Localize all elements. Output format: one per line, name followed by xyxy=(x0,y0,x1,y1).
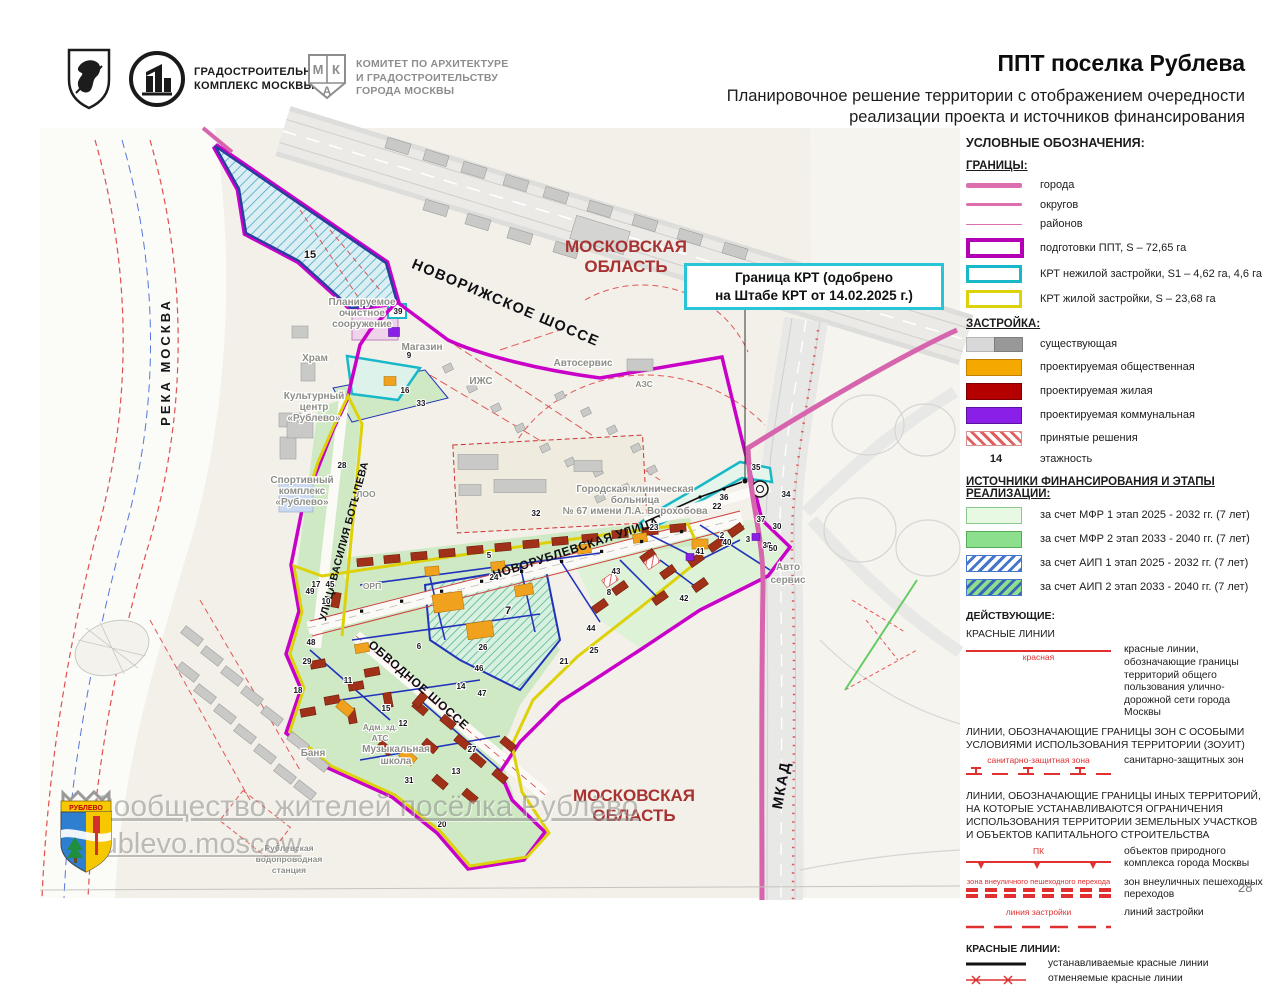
crest-text: РУБЛЕВО xyxy=(69,805,103,812)
map-parcel-number: 49 xyxy=(306,587,315,596)
map-label: Автосервис xyxy=(553,358,613,369)
map-label: ИЖС xyxy=(469,376,492,387)
krt-res-swatch xyxy=(966,290,1026,308)
mka-letter-m: М xyxy=(313,62,324,77)
map-parcel-number: 6 xyxy=(417,642,422,651)
legend-item-city-border: города xyxy=(966,179,1266,192)
okrug-line-swatch xyxy=(966,203,1026,206)
map-parcel-number: 18 xyxy=(294,686,303,695)
legend-item-existing: существующая xyxy=(966,337,1266,352)
map-parcel-number: 9 xyxy=(407,351,412,360)
map-parcel-number: 5 xyxy=(487,551,492,560)
legend-item-krt-nonres: КРТ нежилой застройки, S1 – 4,62 га, 4,6… xyxy=(966,265,1266,283)
legend-item-mfr2: за счет МФР 2 этап 2033 - 2040 гг. (7 ле… xyxy=(966,531,1266,548)
map-label: водопроводная xyxy=(256,854,323,864)
ppt-swatch xyxy=(966,238,1026,258)
map-label: МОСКОВСКАЯ xyxy=(573,786,695,805)
legend-item-district-border: районов xyxy=(966,218,1266,231)
map-parcel-number: 36 xyxy=(720,493,729,502)
page-title: ППТ поселка Рублева xyxy=(997,50,1245,77)
mka-logo: М К А xyxy=(306,52,348,102)
map-parcel-number: 42 xyxy=(680,594,689,603)
map-parcel-number: 21 xyxy=(560,657,569,666)
legend-label: КРТ нежилой застройки, S1 – 4,62 га, 4,6… xyxy=(1040,268,1262,281)
floors-symbol: 14 xyxy=(966,453,1026,465)
map-parcel-number: 10 xyxy=(322,597,331,606)
map-label: «Рублево» xyxy=(275,496,329,508)
map-parcel-number: 14 xyxy=(457,682,466,691)
map-label: Баня xyxy=(301,748,326,759)
map-label: Городская клиническая xyxy=(576,484,693,495)
red-line-sample: красная xyxy=(966,644,1116,662)
map-parcel-number: 29 xyxy=(303,657,312,666)
sanitary-sample: санитарно-защитная зона xyxy=(966,755,1116,784)
map-parcel-number: 48 xyxy=(307,638,316,647)
map-label: Музыкальная xyxy=(362,744,430,755)
map-label: станция xyxy=(272,865,306,875)
established-desc: устанавливаемые красные линии xyxy=(1048,958,1209,971)
map-parcel-number: 15 xyxy=(382,704,391,713)
legend-label: этажность xyxy=(1040,453,1092,466)
legend-item-communal: проектируемая коммунальная xyxy=(966,407,1266,424)
map-parcel-number: 25 xyxy=(590,646,599,655)
map-parcel-number: 40 xyxy=(723,538,732,547)
aip1-swatch xyxy=(966,555,1026,572)
map-label: комплекс xyxy=(279,486,326,497)
legend-label: проектируемая жилая xyxy=(1040,385,1153,398)
sanitary-desc: санитарно-защитных зон xyxy=(1124,755,1244,768)
aip2-swatch xyxy=(966,579,1026,596)
legend-label: проектируемая общественная xyxy=(1040,361,1195,374)
rublevo-crest: РУБЛЕВО xyxy=(55,788,147,876)
map-label: Авто xyxy=(776,562,800,573)
pk-desc: объектов природного комплекса города Мос… xyxy=(1124,846,1266,871)
map-label: АТС xyxy=(371,733,388,743)
mfr1-swatch xyxy=(966,507,1026,524)
city-line-swatch xyxy=(966,183,1026,188)
map-parcel-number: 31 xyxy=(405,776,414,785)
communal-swatch xyxy=(966,407,1026,424)
legend-acting-title: ДЕЙСТВУЮЩИЕ: xyxy=(966,610,1266,622)
ped-row: зона внеуличного пешеходного перехода зо… xyxy=(966,877,1266,904)
building-line-row: линия застройки линий застройки xyxy=(966,907,1266,935)
map-label: АЗС xyxy=(635,379,652,389)
map-parcel-number: 44 xyxy=(587,624,596,633)
map-parcel-number: 47 xyxy=(478,689,487,698)
moscow-coat-of-arms-logo xyxy=(66,48,112,110)
map-label: ЛОО xyxy=(356,489,376,499)
map-parcel-number: 3 xyxy=(746,535,751,544)
sanitary-line-icon xyxy=(966,765,1111,779)
gradkompleks-logo xyxy=(128,50,186,108)
legend-label: города xyxy=(1040,179,1074,192)
legend-label: существующая xyxy=(1040,338,1117,351)
mfr2-swatch xyxy=(966,531,1026,548)
map-label: Адм. зд. xyxy=(363,722,398,732)
map-parcel-number: 13 xyxy=(452,767,461,776)
mka-letter-a: А xyxy=(323,84,332,98)
map-label: Рублевская xyxy=(264,843,313,853)
map-label: Спортивный xyxy=(270,475,333,486)
map-parcel-number: 32 xyxy=(532,509,541,518)
map-parcel-number: 26 xyxy=(479,643,488,652)
sanitary-row: санитарно-защитная зона санитарно-защитн… xyxy=(966,755,1266,784)
legend-item-okrug-border: округов xyxy=(966,199,1266,212)
legend-label: за счет АИП 2 этап 2033 - 2040 гг. (7 ле… xyxy=(1040,581,1248,594)
map-label: Планируемое xyxy=(328,297,395,308)
legend-borders-title: ГРАНИЦЫ: xyxy=(966,160,1266,172)
established-line-icon xyxy=(966,960,1030,968)
legend-label: принятые решения xyxy=(1040,432,1138,445)
accepted-swatch xyxy=(966,431,1026,446)
map-parcel-number: 15 xyxy=(304,249,316,261)
district-line-swatch xyxy=(966,224,1026,226)
established-row: устанавливаемые красные линии xyxy=(966,958,1266,971)
map-label: очистное xyxy=(339,308,385,319)
legend-item-public: проектируемая общественная xyxy=(966,359,1266,376)
building-line-sample: линия застройки xyxy=(966,907,1116,935)
red-lines-header: КРАСНЫЕ ЛИНИИ xyxy=(966,629,1266,642)
map-label: Храм xyxy=(302,353,328,364)
legend-title: УСЛОВНЫЕ ОБОЗНАЧЕНИЯ: xyxy=(966,136,1266,150)
map-label: РЕКА МОСКВА xyxy=(158,298,173,426)
building-line-desc: линий застройки xyxy=(1124,907,1204,920)
red-lines-row: красная красные линии, обозначающие гран… xyxy=(966,644,1266,719)
map-label: школа xyxy=(381,756,412,767)
mka-name: КОМИТЕТ ПО АРХИТЕКТУРЕ И ГРАДОСТРОИТЕЛЬС… xyxy=(356,58,508,99)
pk-line-icon xyxy=(966,859,1111,869)
page-subtitle: Планировочное решение территории с отобр… xyxy=(585,86,1245,127)
legend-label: подготовки ППТ, S – 72,65 га xyxy=(1040,242,1186,255)
map-parcel-number: 37 xyxy=(757,515,766,524)
map-label: центр xyxy=(300,402,329,413)
map-label: ОРП xyxy=(363,581,381,591)
building-line-icon xyxy=(966,924,1111,930)
map-label: МОСКОВСКАЯ xyxy=(565,237,687,256)
legend-label: за счет АИП 1 этап 2025 - 2032 гг. (7 ле… xyxy=(1040,557,1248,570)
public-swatch xyxy=(966,359,1026,376)
map-label: «Рублево» xyxy=(287,412,341,424)
map-parcel-number: 7 xyxy=(505,605,511,617)
map-parcel-number: 23 xyxy=(650,523,659,532)
krt-border-callout[interactable]: Граница КРТ (одобрено на Штабе КРТ от 14… xyxy=(684,263,944,310)
legend-item-aip1: за счет АИП 1 этап 2025 - 2032 гг. (7 ле… xyxy=(966,555,1266,572)
map-parcel-number: 33 xyxy=(417,399,426,408)
existing-swatch xyxy=(966,337,1026,352)
map-parcel-number: 34 xyxy=(782,490,791,499)
legend-label: за счет МФР 2 этап 2033 - 2040 гг. (7 ле… xyxy=(1040,533,1250,546)
krt-nonres-swatch xyxy=(966,265,1026,283)
map-parcel-number: 30 xyxy=(773,522,782,531)
map-parcel-number: 22 xyxy=(713,502,722,511)
cancelled-desc: отменяемые красные линии xyxy=(1048,973,1183,986)
legend-item-floors: 14 этажность xyxy=(966,453,1266,466)
legend-financing-title: ИСТОЧНИКИ ФИНАНСИРОВАНИЯ И ЭТАПЫ РЕАЛИЗА… xyxy=(966,476,1266,500)
pk-row: ПК объектов природного комплекса города … xyxy=(966,846,1266,874)
east-area xyxy=(801,128,960,898)
map-label: сооружение xyxy=(332,319,392,330)
legend-item-aip2: за счет АИП 2 этап 2033 - 2040 гг. (7 ле… xyxy=(966,579,1266,596)
pk-sample: ПК xyxy=(966,846,1116,874)
legend-label: районов xyxy=(1040,218,1083,231)
map-parcel-number: 12 xyxy=(399,719,408,728)
map-label: больница xyxy=(611,494,660,506)
legend-label: КРТ жилой застройки, S – 23,68 га xyxy=(1040,293,1216,306)
legend-label: за счет МФР 1 этап 2025 - 2032 гг. (7 ле… xyxy=(1040,509,1250,522)
map-label: № 67 имени Л.А. Ворохобова xyxy=(562,505,707,517)
map-parcel-number: 35 xyxy=(752,463,761,472)
legend-item-mfr1: за счет МФР 1 этап 2025 - 2032 гг. (7 ле… xyxy=(966,507,1266,524)
map-parcel-number: 11 xyxy=(344,676,353,685)
map-parcel-number: 27 xyxy=(468,745,477,754)
legend-item-accepted: принятые решения xyxy=(966,431,1266,446)
legend-panel: УСЛОВНЫЕ ОБОЗНАЧЕНИЯ: ГРАНИЦЫ: города ок… xyxy=(966,136,1266,989)
map-parcel-number: 39 xyxy=(394,307,403,316)
legend-item-ppt: подготовки ППТ, S – 72,65 га xyxy=(966,238,1266,258)
other-lines-header: ЛИНИИ, ОБОЗНАЧАЮЩИЕ ГРАНИЦЫ ИНЫХ ТЕРРИТО… xyxy=(966,791,1266,842)
map-parcel-number: 20 xyxy=(438,820,447,829)
zouit-header: ЛИНИИ, ОБОЗНАЧАЮЩИЕ ГРАНИЦЫ ЗОН С ОСОБЫМ… xyxy=(966,727,1266,753)
legend-label: проектируемая коммунальная xyxy=(1040,409,1195,422)
ped-line-icon xyxy=(966,887,1111,899)
page-number: 28 xyxy=(1238,880,1252,895)
map-parcel-number: 28 xyxy=(338,461,347,470)
map-parcel-number: 41 xyxy=(696,547,705,556)
legend-item-residential: проектируемая жилая xyxy=(966,383,1266,400)
map-parcel-number: 50 xyxy=(769,544,778,553)
map-parcel-number: 46 xyxy=(475,664,484,673)
map-parcel-number: 16 xyxy=(401,386,410,395)
cancelled-row: отменяемые красные линии xyxy=(966,973,1266,986)
map-parcel-number: 8 xyxy=(607,588,612,597)
map-parcel-number: 45 xyxy=(326,580,335,589)
red-lines-desc: красные линии, обозначающие границы терр… xyxy=(1124,644,1266,719)
map-label: сервис xyxy=(770,575,806,586)
ped-sample: зона внеуличного пешеходного перехода xyxy=(966,877,1116,904)
map-parcel-number: 24 xyxy=(490,573,499,582)
residential-swatch xyxy=(966,383,1026,400)
map-label: ОБЛАСТЬ xyxy=(584,257,667,276)
mka-letter-k: К xyxy=(332,62,340,77)
map-parcel-number: 43 xyxy=(612,567,621,576)
map-label: ОБЛАСТЬ xyxy=(592,806,675,825)
legend-label: округов xyxy=(1040,199,1078,212)
legend-development-title: ЗАСТРОЙКА: xyxy=(966,318,1266,330)
legend-item-krt-res: КРТ жилой застройки, S – 23,68 га xyxy=(966,290,1266,308)
map-label: Культурный xyxy=(284,391,345,402)
red-lines2-header: КРАСНЫЕ ЛИНИИ: xyxy=(966,944,1266,955)
cancelled-line-icon xyxy=(966,974,1030,986)
